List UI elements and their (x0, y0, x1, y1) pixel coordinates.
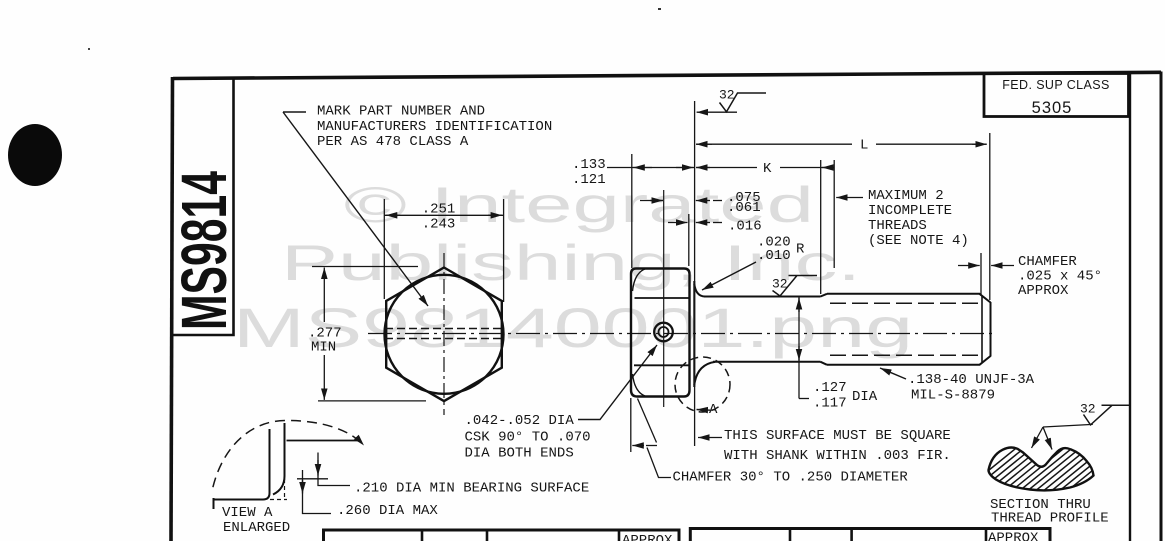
svg-text:K: K (763, 161, 772, 177)
svg-text:32: 32 (772, 277, 788, 292)
svg-text:MS9814: MS9814 (168, 171, 240, 330)
svg-text:APPROX: APPROX (1018, 283, 1069, 299)
svg-text:DIA: DIA (852, 389, 878, 405)
svg-text:.260 DIA MAX: .260 DIA MAX (337, 503, 438, 519)
svg-text:.138-40 UNJF-3A: .138-40 UNJF-3A (908, 372, 1035, 388)
svg-text:.210 DIA MIN BEARING SURFACE: .210 DIA MIN BEARING SURFACE (354, 481, 589, 497)
svg-text:.121: .121 (572, 172, 606, 188)
svg-text:MAXIMUM 2: MAXIMUM 2 (868, 188, 944, 204)
svg-text:.127: .127 (813, 380, 847, 396)
svg-text:A: A (709, 402, 718, 418)
svg-text:THREAD PROFILE: THREAD PROFILE (991, 511, 1109, 527)
svg-text:PER AS 478 CLASS A: PER AS 478 CLASS A (317, 134, 469, 150)
svg-text:THIS SURFACE MUST BE SQUARE: THIS SURFACE MUST BE SQUARE (724, 428, 951, 444)
svg-text:R: R (796, 242, 805, 258)
svg-text:MIN: MIN (311, 340, 336, 356)
svg-text:APPROX: APPROX (622, 533, 673, 541)
svg-text:WITH SHANK WITHIN .003 FIR.: WITH SHANK WITHIN .003 FIR. (724, 448, 951, 464)
svg-text:THREADS: THREADS (868, 218, 927, 234)
svg-text:32: 32 (719, 88, 735, 103)
svg-text:FED. SUP CLASS: FED. SUP CLASS (1002, 78, 1110, 92)
svg-text:.010: .010 (757, 248, 791, 264)
svg-text:CHAMFER 30° TO .250 DIAMETER: CHAMFER 30° TO .250 DIAMETER (673, 470, 909, 486)
svg-text:.061: .061 (727, 200, 761, 216)
svg-text:L: L (860, 138, 868, 154)
svg-text:.243: .243 (422, 217, 456, 233)
svg-text:DIA BOTH ENDS: DIA BOTH ENDS (465, 446, 574, 462)
svg-text:5305: 5305 (1032, 99, 1073, 117)
svg-text:APPROX: APPROX (988, 531, 1039, 541)
svg-text:.042-.052 DIA: .042-.052 DIA (465, 413, 575, 429)
svg-text:(SEE NOTE 4): (SEE NOTE 4) (868, 233, 969, 249)
svg-text:CSK 90° TO .070: CSK 90° TO .070 (465, 430, 591, 446)
svg-text:32: 32 (1080, 402, 1096, 417)
svg-text:MIL-S-8879: MIL-S-8879 (911, 388, 995, 404)
svg-text:MARK PART NUMBER AND: MARK PART NUMBER AND (317, 104, 485, 120)
svg-text:.016: .016 (728, 219, 762, 235)
svg-text:MANUFACTURERS IDENTIFICATION: MANUFACTURERS IDENTIFICATION (317, 119, 552, 135)
svg-text:.251: .251 (422, 202, 456, 218)
svg-text:ENLARGED: ENLARGED (223, 520, 290, 536)
svg-text:.117: .117 (813, 396, 847, 412)
svg-text:VIEW A: VIEW A (222, 505, 273, 521)
svg-text:INCOMPLETE: INCOMPLETE (868, 203, 952, 219)
svg-text:.133: .133 (572, 157, 606, 173)
